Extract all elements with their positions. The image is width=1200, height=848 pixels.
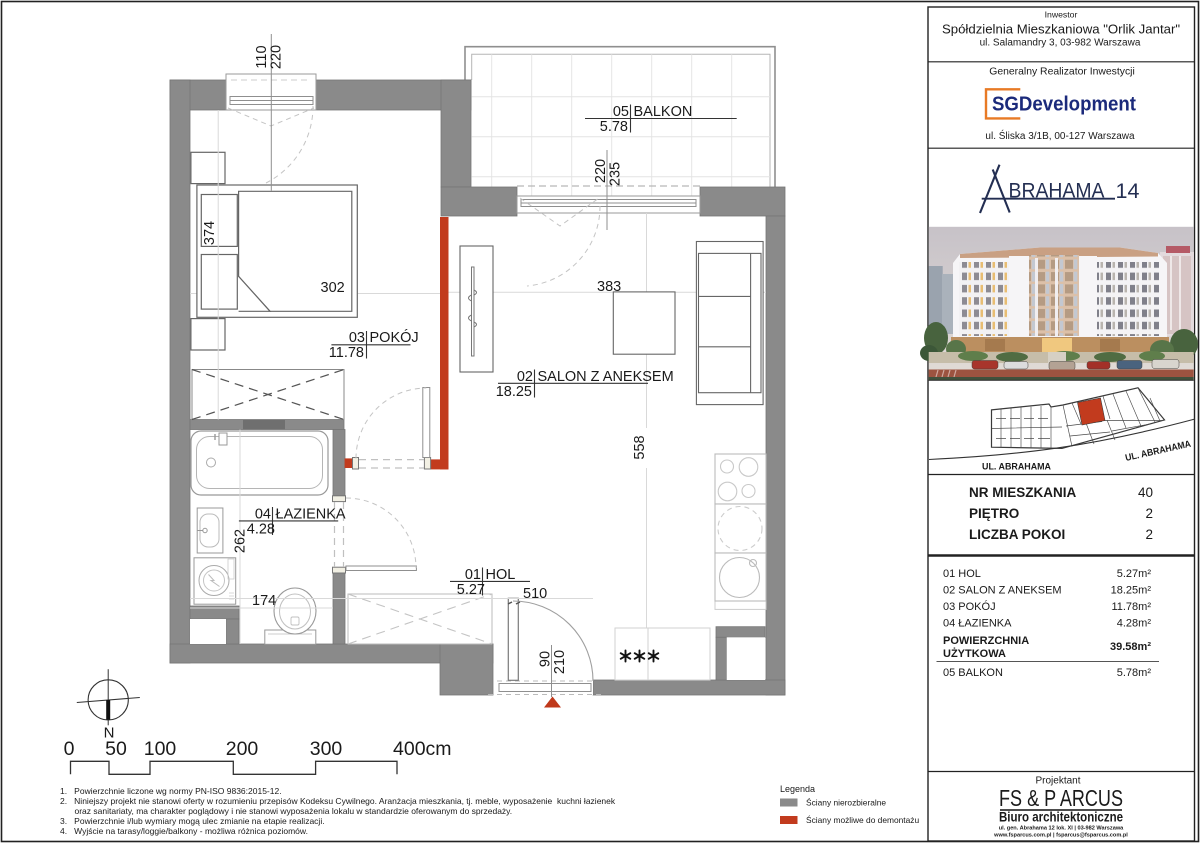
svg-text:0: 0 [64,738,75,760]
svg-text:374: 374 [202,221,218,245]
svg-text:558: 558 [632,435,648,459]
svg-text:UŻYTKOWA: UŻYTKOWA [943,647,1006,660]
svg-text:LICZBA POKOI: LICZBA POKOI [969,527,1065,542]
svg-text:Ściany możliwe do demontażu: Ściany możliwe do demontażu [806,814,919,825]
svg-text:ul. Salamandry 3, 03-982 Warsz: ul. Salamandry 3, 03-982 Warszawa [980,38,1141,49]
svg-text:235: 235 [607,162,623,186]
svg-text:BRAHAMA: BRAHAMA [1009,180,1105,203]
svg-text:400cm: 400cm [393,738,452,760]
svg-text:2: 2 [1145,506,1153,521]
svg-text:5.78m²: 5.78m² [1117,667,1152,679]
svg-text:5.27: 5.27 [457,582,485,598]
svg-text:04: 04 [255,507,271,523]
svg-text:NR MIESZKANIA: NR MIESZKANIA [969,485,1076,500]
svg-text:510: 510 [523,586,547,602]
svg-text:300: 300 [310,738,343,760]
svg-text:01 HOL: 01 HOL [943,568,981,580]
svg-text:3. Powierzchnie i/lub wymiar: 3. Powierzchnie i/lub wymiary mogą ulec … [60,816,325,826]
svg-text:100: 100 [144,738,177,760]
svg-text:05: 05 [613,104,629,120]
svg-text:18.25m²: 18.25m² [1111,585,1152,597]
svg-text:14: 14 [1116,179,1140,203]
svg-text:4. Wyjście na tarasy/loggie/: 4. Wyjście na tarasy/loggie/balkony - mo… [60,826,308,836]
svg-text:Spółdzielnia Mieszkaniowa "Orl: Spółdzielnia Mieszkaniowa "Orlik Jantar" [942,22,1180,37]
svg-text:1. Powierzchnie liczone wg n: 1. Powierzchnie liczone wg normy PN-ISO … [60,786,282,796]
svg-text:BALKON: BALKON [634,104,693,120]
svg-text:Ściany nierozbieralne: Ściany nierozbieralne [806,797,886,808]
svg-text:SGDevelopment: SGDevelopment [992,94,1136,116]
svg-text:POWIERZCHNIA: POWIERZCHNIA [943,635,1029,647]
svg-text:oraz sanitariaty, ma charakter: oraz sanitariaty, ma charakter poglądowy… [75,806,513,816]
svg-text:220: 220 [268,45,284,69]
svg-text:11.78: 11.78 [329,345,364,361]
svg-text:www.fsparcus.com.pl | fsparcus: www.fsparcus.com.pl | fsparcus@fsparcus.… [993,833,1128,839]
svg-text:UL. ABRAHAMA: UL. ABRAHAMA [982,462,1051,473]
svg-text:03: 03 [349,330,365,346]
svg-text:POKÓJ: POKÓJ [370,329,419,346]
svg-text:302: 302 [321,280,345,296]
svg-text:HOL: HOL [486,567,516,583]
svg-text:ul. Śliska 3/1B, 00-127 Warsza: ul. Śliska 3/1B, 00-127 Warszawa [985,129,1135,142]
svg-text:39.58m²: 39.58m² [1110,641,1151,653]
svg-text:2: 2 [1145,527,1153,542]
svg-text:05 BALKON: 05 BALKON [943,667,1003,679]
svg-text:FS & P ARCUS: FS & P ARCUS [999,785,1123,811]
svg-text:04 ŁAZIENKA: 04 ŁAZIENKA [943,618,1012,630]
svg-text:40: 40 [1138,485,1153,500]
svg-text:18.25: 18.25 [496,384,532,400]
svg-text:03 POKÓJ: 03 POKÓJ [943,600,996,613]
svg-text:174: 174 [252,593,276,609]
svg-text:01: 01 [465,567,481,583]
svg-text:5.78: 5.78 [600,119,628,135]
svg-text:4.28m²: 4.28m² [1117,618,1152,630]
svg-text:210: 210 [552,650,568,674]
svg-text:50: 50 [105,738,127,760]
svg-text:SALON Z ANEKSEM: SALON Z ANEKSEM [538,369,674,385]
svg-text:Biuro architektoniczne: Biuro architektoniczne [999,810,1123,825]
svg-text:02 SALON Z ANEKSEM: 02 SALON Z ANEKSEM [943,585,1062,597]
svg-text:Legenda: Legenda [780,784,815,794]
svg-text:Generalny Realizator Inwestycj: Generalny Realizator Inwestycji [989,67,1135,78]
svg-text:4.28: 4.28 [247,522,275,538]
svg-text:5.27m²: 5.27m² [1117,568,1152,580]
svg-text:11.78m²: 11.78m² [1111,601,1151,613]
svg-text:02: 02 [517,369,533,385]
svg-text:ul. gen. Abrahama 12 lok. XI |: ul. gen. Abrahama 12 lok. XI | 03-982 Wa… [999,826,1124,832]
svg-text:PIĘTRO: PIĘTRO [969,506,1019,521]
svg-text:2. Niniejszy projekt nie sta: 2. Niniejszy projekt nie stanowi oferty … [60,796,616,806]
svg-text:200: 200 [226,738,259,760]
svg-text:ŁAZIENKA: ŁAZIENKA [276,507,346,523]
svg-text:383: 383 [597,279,621,295]
svg-text:Inwestor: Inwestor [1045,10,1078,20]
